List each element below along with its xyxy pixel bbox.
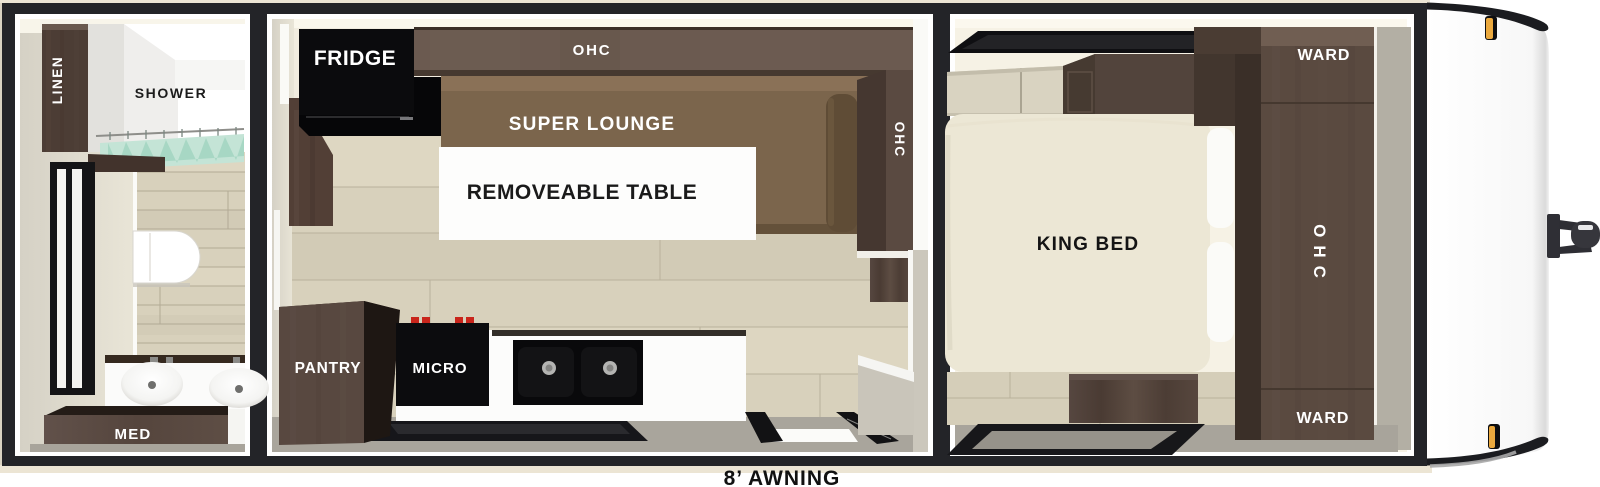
svg-text:OHC: OHC [1310,224,1329,286]
svg-text:MICRO: MICRO [413,360,468,377]
svg-text:SUPER LOUNGE: SUPER LOUNGE [509,114,675,135]
svg-text:WARD: WARD [1297,410,1350,427]
svg-text:LINEN: LINEN [50,56,65,105]
svg-text:PANTRY: PANTRY [295,360,362,377]
svg-text:WARD: WARD [1298,47,1351,64]
svg-text:FRIDGE: FRIDGE [314,47,396,70]
svg-text:MED: MED [115,426,152,443]
svg-text:SHOWER: SHOWER [135,85,208,101]
svg-text:8’ AWNING: 8’ AWNING [724,467,841,487]
svg-text:KING BED: KING BED [1037,234,1140,255]
svg-text:REMOVEABLE TABLE: REMOVEABLE TABLE [467,181,697,204]
svg-text:OHC: OHC [892,122,907,159]
svg-text:OHC: OHC [573,42,612,59]
